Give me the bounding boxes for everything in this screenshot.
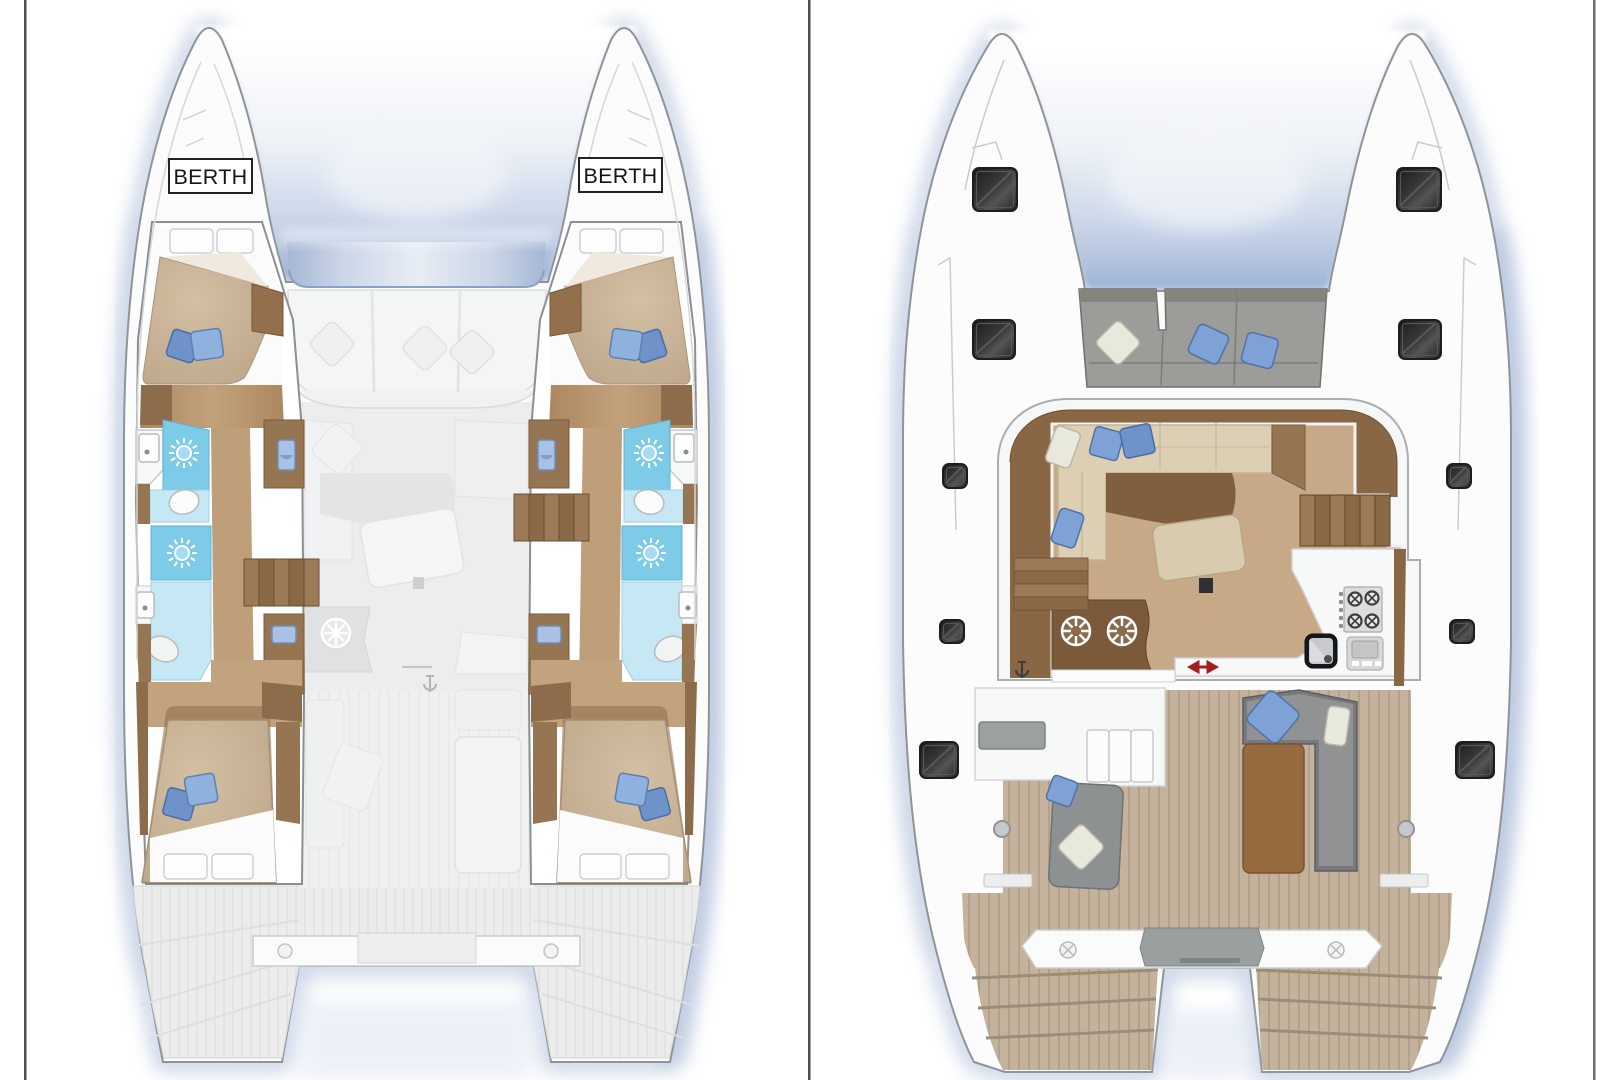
svg-text:BERTH: BERTH xyxy=(174,165,248,189)
svg-text:BERTH: BERTH xyxy=(584,164,658,188)
